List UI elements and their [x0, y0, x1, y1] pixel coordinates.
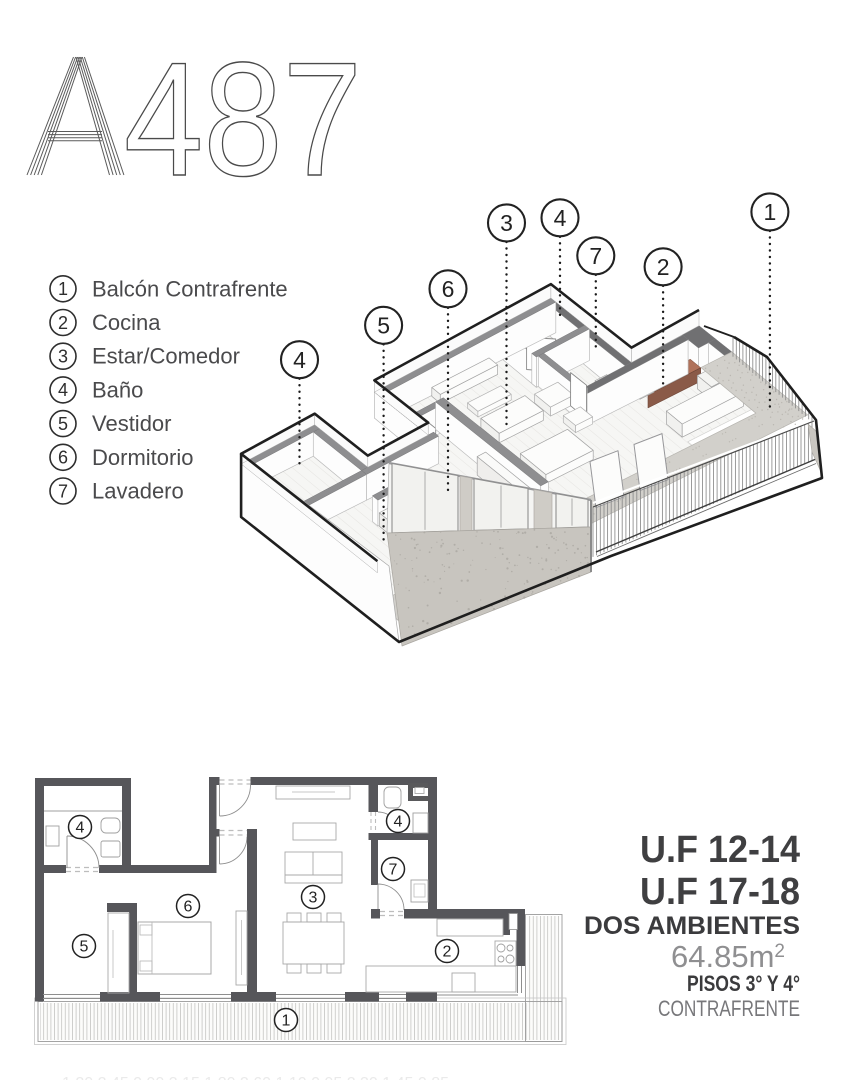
svg-text:4: 4 [76, 820, 85, 837]
svg-text:U.F 17-18: U.F 17-18 [640, 871, 800, 913]
svg-text:487: 487 [124, 29, 362, 210]
svg-text:6: 6 [442, 276, 455, 302]
svg-text:64.85m2: 64.85m2 [671, 939, 785, 974]
svg-text:1.20 2.45 0.90 3.15 1.: 1.20 2.45 0.90 3.15 1.80 2.60 1.10 0.95 … [62, 1075, 449, 1080]
svg-text:PISOS 3° Y 4°: PISOS 3° Y 4° [687, 971, 800, 996]
svg-text:Dormitorio: Dormitorio [92, 445, 193, 470]
svg-text:1: 1 [58, 279, 68, 299]
svg-text:1: 1 [282, 1013, 291, 1030]
svg-text:Baño: Baño [92, 377, 143, 402]
svg-text:U.F 12-14: U.F 12-14 [640, 829, 800, 871]
svg-text:CONTRAFRENTE: CONTRAFRENTE [658, 996, 800, 1021]
svg-text:2: 2 [443, 944, 452, 961]
svg-text:Balcón Contrafrente: Balcón Contrafrente [92, 276, 288, 301]
svg-text:3: 3 [500, 210, 513, 236]
svg-text:7: 7 [389, 862, 398, 879]
svg-text:5: 5 [80, 939, 89, 956]
svg-text:6: 6 [58, 448, 68, 468]
svg-text:Estar/Comedor: Estar/Comedor [92, 344, 240, 369]
svg-text:4: 4 [394, 814, 403, 831]
svg-text:7: 7 [589, 243, 602, 269]
svg-text:4: 4 [293, 347, 306, 373]
svg-text:1: 1 [764, 199, 777, 225]
svg-text:5: 5 [58, 414, 68, 434]
svg-text:3: 3 [309, 890, 318, 907]
svg-text:3: 3 [58, 347, 68, 367]
svg-text:DOS AMBIENTES: DOS AMBIENTES [584, 912, 800, 940]
svg-text:6: 6 [184, 899, 193, 916]
svg-text:Lavadero: Lavadero [92, 479, 184, 504]
svg-text:Cocina: Cocina [92, 310, 161, 335]
svg-text:7: 7 [58, 481, 68, 501]
svg-text:4: 4 [554, 205, 567, 231]
svg-text:2: 2 [58, 313, 68, 333]
svg-text:4: 4 [58, 380, 68, 400]
svg-text:2: 2 [657, 254, 670, 280]
svg-text:Vestidor: Vestidor [92, 411, 172, 436]
svg-text:5: 5 [377, 312, 390, 338]
